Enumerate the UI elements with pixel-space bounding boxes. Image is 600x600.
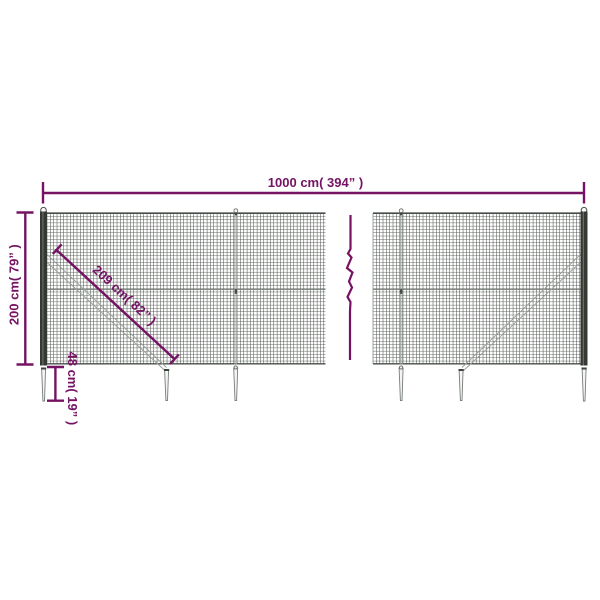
svg-text:200 cm( 79” ): 200 cm( 79” ) (7, 244, 22, 325)
svg-text:48 cm( 19” ): 48 cm( 19” ) (65, 352, 80, 426)
svg-text:1000 cm( 394” ): 1000 cm( 394” ) (268, 175, 363, 190)
